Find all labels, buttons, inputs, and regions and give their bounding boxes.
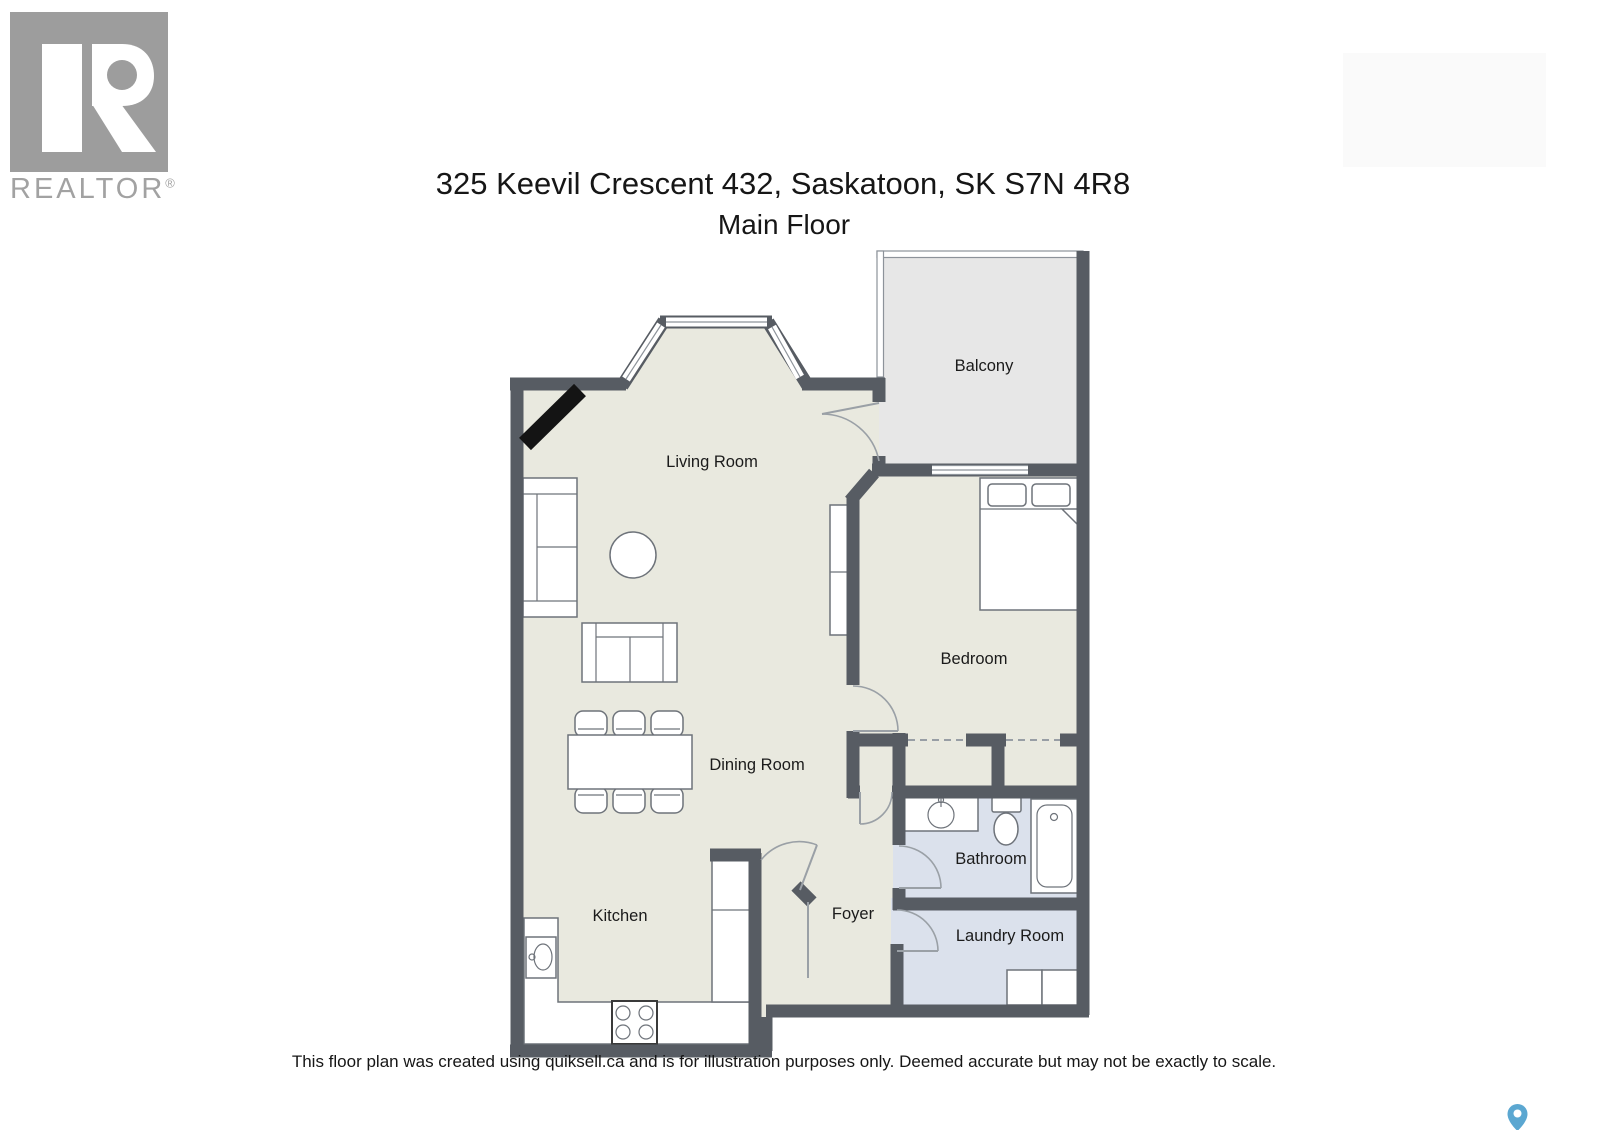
kitchen-counter-right bbox=[712, 858, 750, 1002]
storage-cabinet-icon bbox=[830, 505, 848, 635]
stove-icon bbox=[612, 1001, 657, 1044]
washer-icon bbox=[1007, 970, 1042, 1005]
dining-table-icon bbox=[568, 735, 692, 789]
laundry-appliances bbox=[1007, 970, 1078, 1005]
floor-plan-page: REALTOR® 325 Keevil Crescent 432, Saskat… bbox=[0, 0, 1600, 1130]
room-label-bathroom: Bathroom bbox=[955, 850, 1027, 868]
dining-room-furniture bbox=[568, 711, 692, 813]
dryer-icon bbox=[1042, 970, 1078, 1005]
room-label-living-room: Living Room bbox=[666, 453, 758, 471]
dining-chairs-top bbox=[575, 711, 683, 737]
toilet-icon bbox=[992, 797, 1021, 845]
room-label-kitchen: Kitchen bbox=[592, 907, 647, 925]
round-side-table-icon bbox=[610, 532, 656, 578]
dining-chairs-bottom bbox=[575, 787, 683, 813]
balcony-rail-top bbox=[877, 251, 1083, 258]
room-label-laundry-room: Laundry Room bbox=[956, 927, 1064, 945]
disclaimer-text: This floor plan was created using quikse… bbox=[292, 1052, 1276, 1072]
bedroom-furniture bbox=[980, 478, 1078, 610]
room-label-balcony: Balcony bbox=[955, 357, 1014, 375]
bathtub-icon bbox=[1031, 799, 1078, 893]
sofa-icon bbox=[523, 478, 577, 617]
room-label-bedroom: Bedroom bbox=[941, 650, 1008, 668]
pillow-icon bbox=[1032, 484, 1070, 506]
room-label-foyer: Foyer bbox=[832, 905, 875, 923]
balcony-rail-left bbox=[877, 251, 884, 377]
pillow-icon bbox=[988, 484, 1026, 506]
kitchen-sink-icon bbox=[526, 937, 556, 978]
vanity-sink-icon bbox=[903, 797, 978, 831]
loveseat-icon bbox=[582, 623, 677, 682]
floor-plan-drawing: Living Room Balcony Bedroom Dining Room … bbox=[0, 0, 1600, 1130]
map-pin-icon[interactable] bbox=[1508, 1104, 1528, 1130]
room-label-dining-room: Dining Room bbox=[709, 756, 804, 774]
bedroom-window-icon bbox=[932, 466, 1028, 475]
faint-watermark bbox=[1343, 53, 1546, 167]
